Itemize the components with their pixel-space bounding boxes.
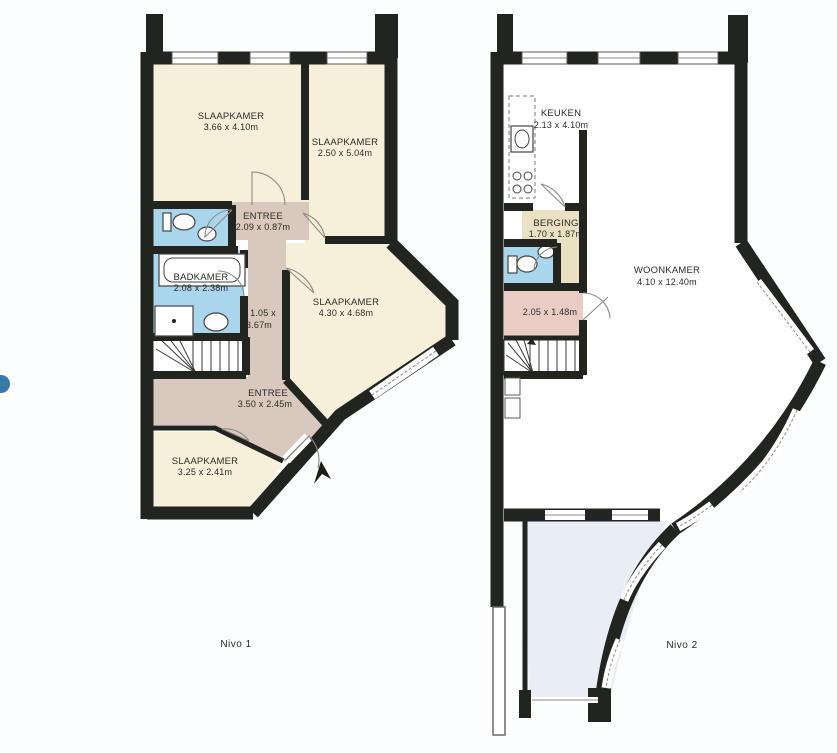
- chimney-stub: [375, 14, 398, 58]
- terrace: [525, 521, 668, 698]
- entrance-arrow-icon: [314, 461, 331, 484]
- floor-plan-page: SLAAPKAMER 3.66 x 4.10m SLAAPKAMER 2.50 …: [0, 0, 837, 753]
- wall-pier: [588, 688, 611, 722]
- wall-pier: [519, 690, 531, 718]
- plan-nivo2: KEUKEN 2.13 x 4.10m BERGING 1.70 x 1.87m…: [493, 14, 820, 735]
- room-label: SLAAPKAMER: [198, 111, 264, 122]
- edge-marker-dot: [0, 375, 10, 393]
- shower-icon: [155, 306, 193, 336]
- room-dims: 2.05 x 1.48m: [523, 307, 577, 317]
- wall-pier: [728, 15, 748, 63]
- plan-caption-nivo1: Nivo 1: [220, 639, 251, 650]
- room-dims: 1.05 x: [250, 308, 276, 318]
- room-dims: 4.10 x 12.40m: [637, 277, 697, 287]
- sink-icon: [204, 313, 228, 331]
- room-label: WOONKAMER: [634, 265, 700, 276]
- room-label: ENTREE: [248, 388, 288, 399]
- room-label: SLAAPKAMER: [172, 456, 238, 467]
- chimney-stub: [146, 14, 163, 58]
- room-dims: 2.50 x 5.04m: [318, 148, 372, 158]
- room-dims: 2.08 x 2.38m: [174, 283, 228, 293]
- room-dims: 2.09 x 0.87m: [236, 222, 290, 232]
- room-label: SLAAPKAMER: [313, 297, 379, 308]
- room-dims: 4.30 x 4.68m: [319, 308, 373, 318]
- windows-nivo2-top: [522, 52, 718, 64]
- plan-caption-nivo2: Nivo 2: [666, 640, 697, 651]
- room-dims: 3.66 x 4.10m: [204, 122, 258, 132]
- room-label: KEUKEN: [541, 108, 581, 119]
- chimney-stub: [497, 14, 513, 58]
- windows-nivo1-top: [172, 52, 367, 64]
- plan-nivo1: SLAAPKAMER 3.66 x 4.10m SLAAPKAMER 2.50 …: [146, 14, 452, 650]
- floor-plan-drawing: SLAAPKAMER 3.66 x 4.10m SLAAPKAMER 2.50 …: [0, 0, 837, 753]
- room-dims: 3.50 x 2.45m: [238, 399, 292, 409]
- room-label: SLAAPKAMER: [312, 137, 378, 148]
- room-label: BADKAMER: [174, 272, 229, 283]
- room-dims: 2.13 x 4.10m: [534, 120, 588, 130]
- room-dims: 3.25 x 2.41m: [178, 467, 232, 477]
- stairwell-floor-2: [504, 340, 583, 375]
- room-dims: 1.70 x 1.87m: [529, 229, 583, 239]
- room-label: ENTREE: [243, 211, 283, 222]
- room-dims: 3.67m: [246, 320, 272, 330]
- room-label: BERGING: [533, 218, 578, 229]
